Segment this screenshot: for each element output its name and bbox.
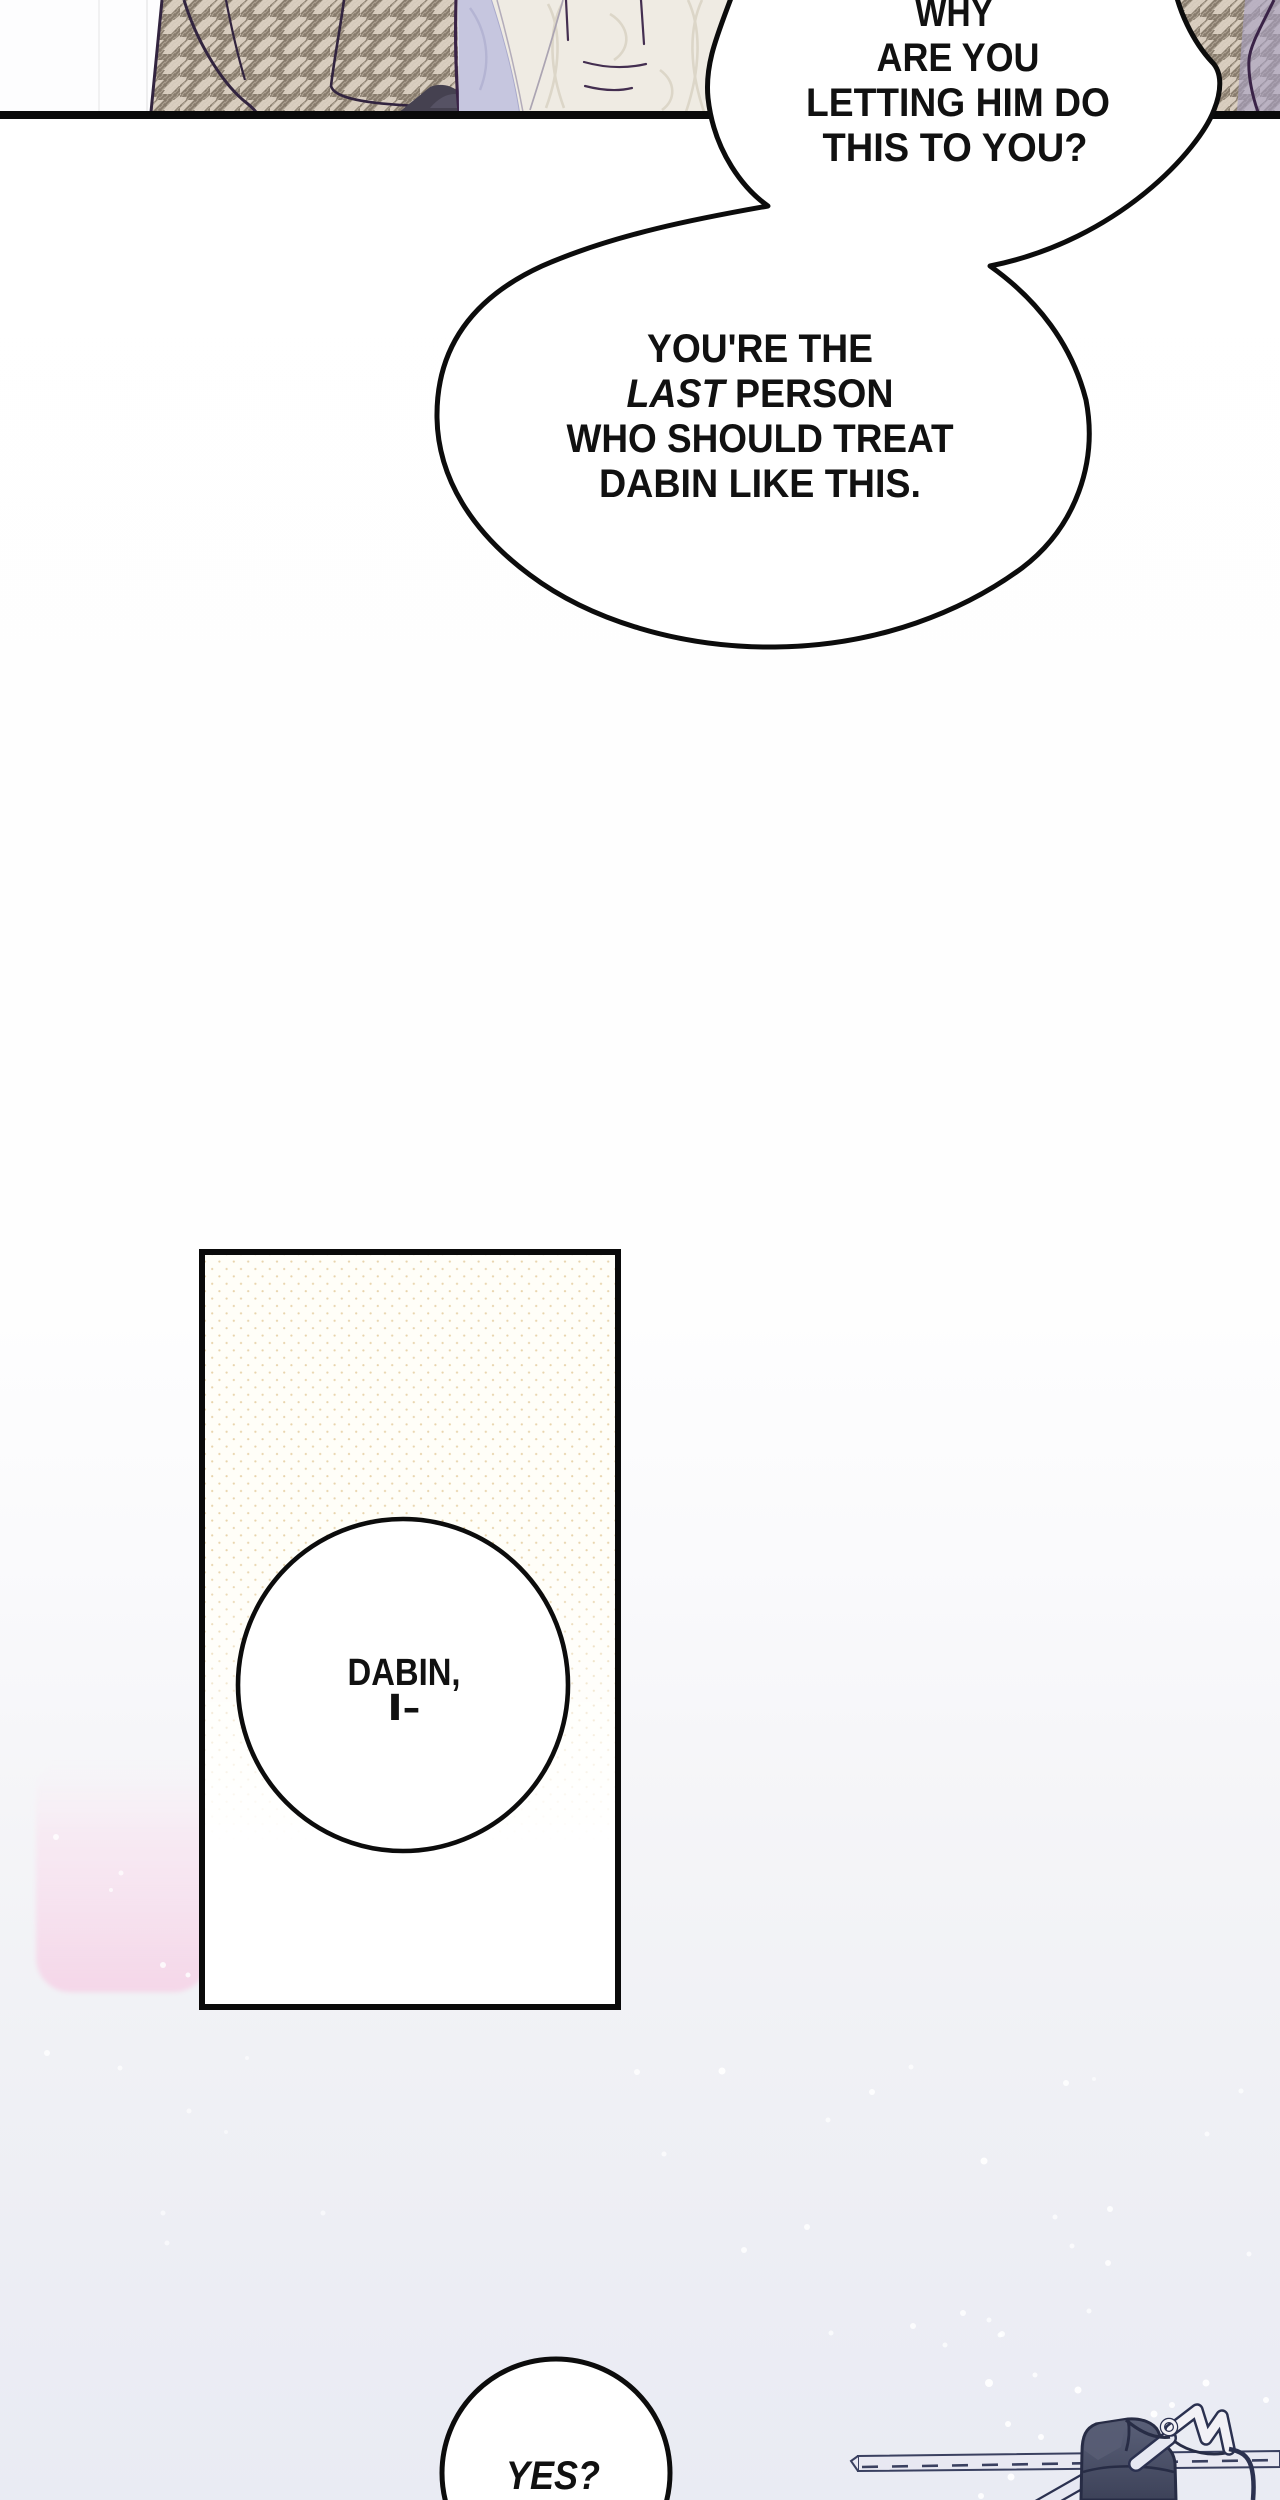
svg-text:YES?: YES? bbox=[506, 2454, 600, 2498]
svg-text:WHY: WHY bbox=[915, 0, 993, 35]
svg-text:DABIN LIKE THIS.: DABIN LIKE THIS. bbox=[599, 462, 921, 506]
svg-text:LETTING HIM DO: LETTING HIM DO bbox=[806, 81, 1110, 125]
svg-text:ARE YOU: ARE YOU bbox=[877, 36, 1040, 80]
svg-text:WHO SHOULD TREAT: WHO SHOULD TREAT bbox=[567, 417, 954, 461]
svg-text:I-: I- bbox=[388, 1687, 421, 1729]
svg-text:LAST PERSON: LAST PERSON bbox=[627, 372, 894, 416]
svg-text:YOU'RE THE: YOU'RE THE bbox=[647, 327, 873, 371]
svg-text:THIS TO YOU?: THIS TO YOU? bbox=[823, 126, 1088, 170]
